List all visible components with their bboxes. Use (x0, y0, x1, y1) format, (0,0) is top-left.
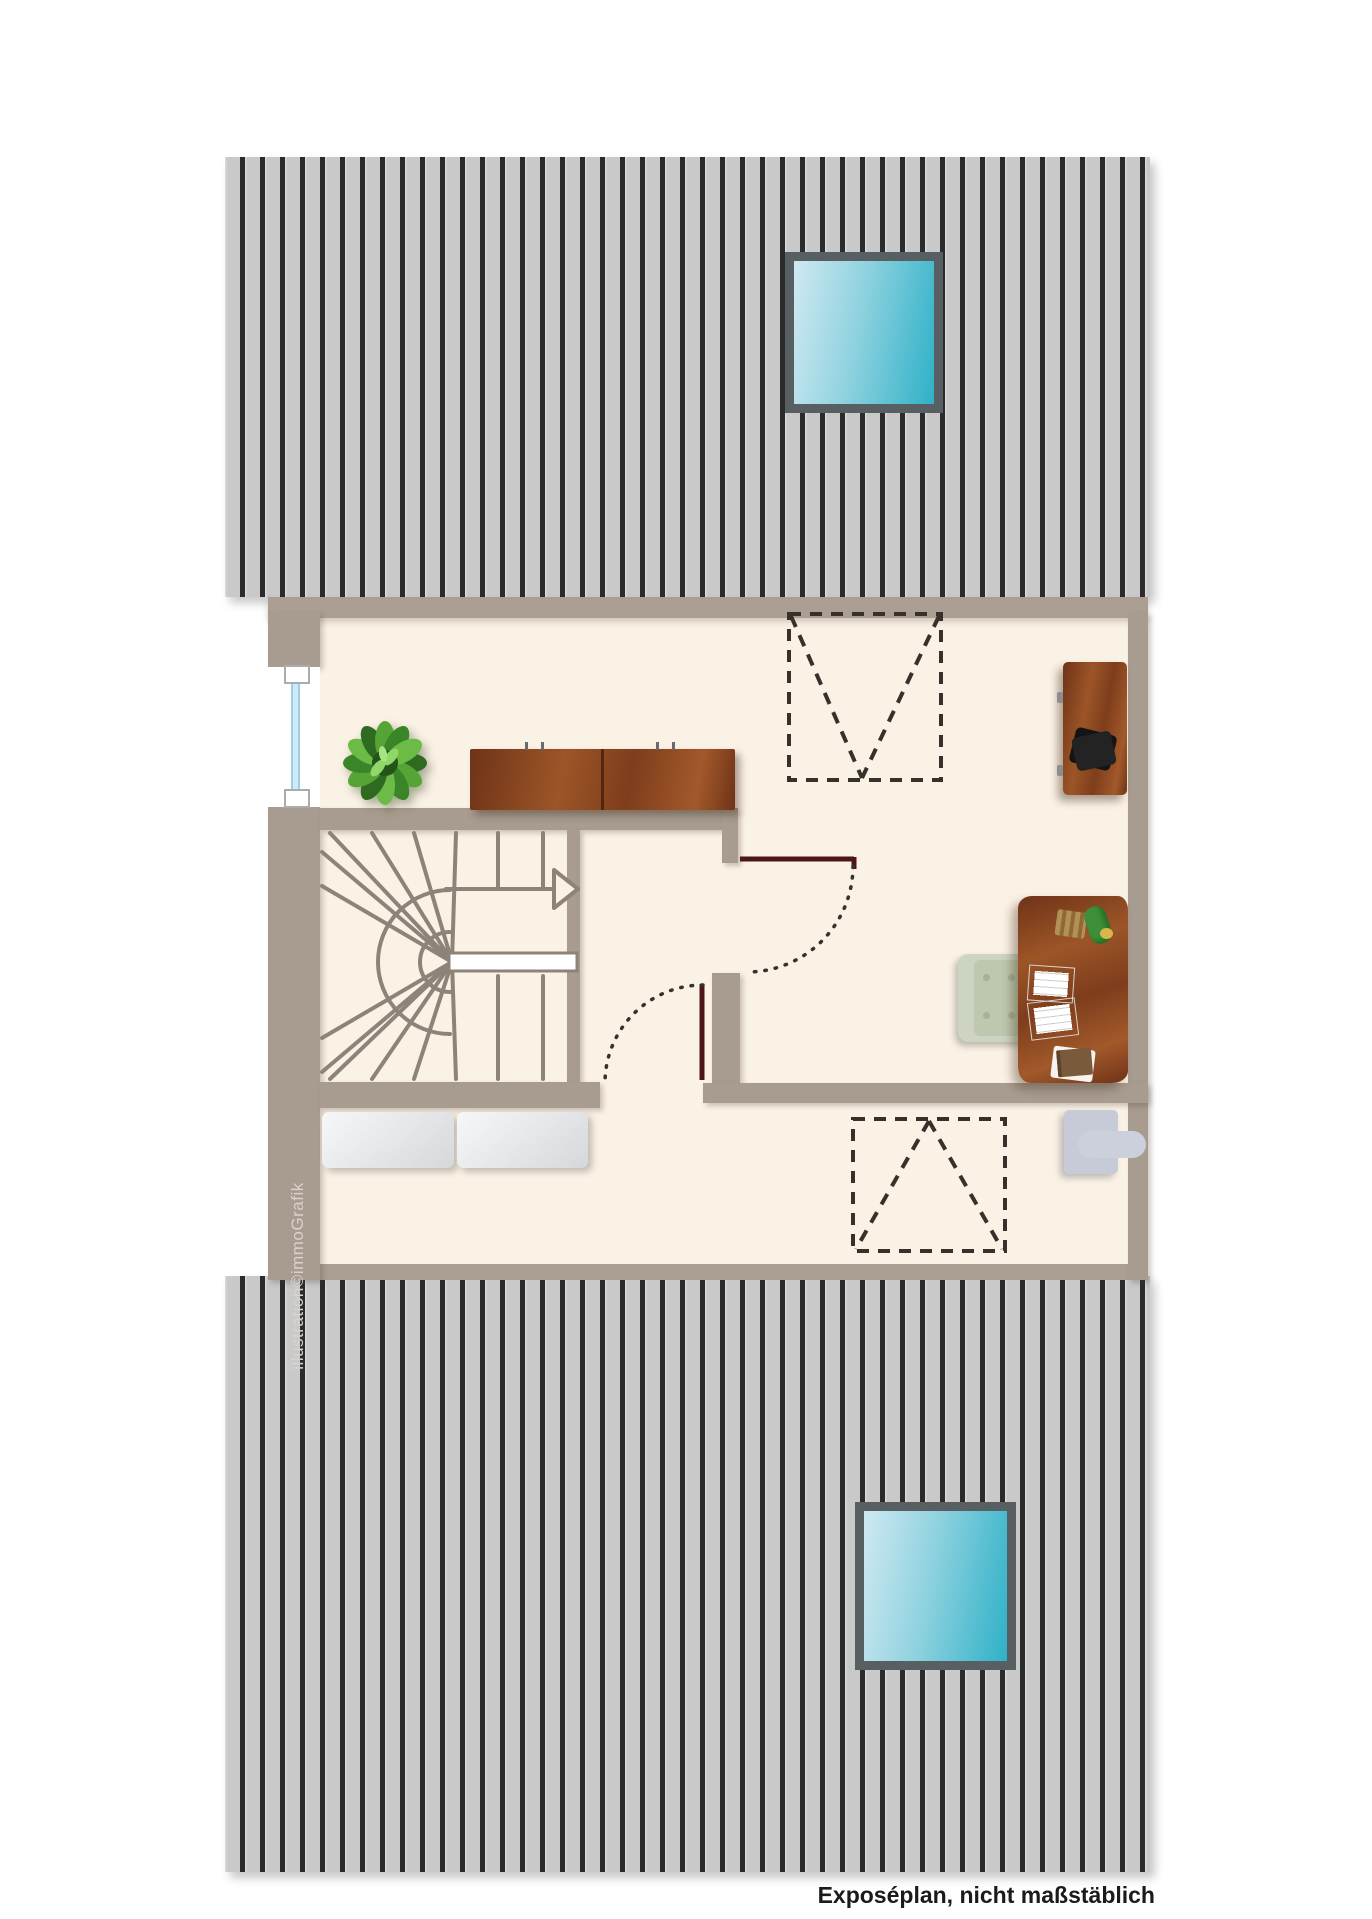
office-chair-seat (974, 960, 1024, 1036)
illustrator-watermark: illustration©immoGrafik (288, 1140, 308, 1412)
floor-plan: Exposéplan, nicht maßstäblich illustrati… (0, 0, 1372, 1919)
window-post (284, 665, 310, 684)
wall-stair-bottom (320, 1082, 600, 1108)
sofa-cushion (322, 1112, 454, 1168)
roof-surface-top (225, 157, 1150, 597)
window-glazing (291, 682, 300, 792)
eave-band-top (268, 597, 1148, 618)
wall-top-room (320, 808, 722, 830)
sideboard-handle (525, 742, 528, 750)
cabinet (1063, 662, 1127, 795)
room-floor (268, 597, 1148, 1280)
chair-button (1008, 974, 1015, 981)
sideboard (470, 749, 735, 810)
desk-plant-accent (1100, 928, 1113, 939)
eave-band-bottom (268, 1264, 1148, 1280)
sofa-cushion (457, 1112, 588, 1168)
wall-door-pier (712, 973, 740, 1083)
skylight-window (855, 1502, 1016, 1670)
chair-button (983, 1012, 990, 1019)
plan-caption: Exposéplan, nicht maßstäblich (555, 1882, 1155, 1909)
desk-notepad (1054, 909, 1087, 939)
cabinet-handle (1057, 765, 1063, 776)
sideboard-handle (541, 742, 544, 750)
paper-sheet (1027, 997, 1079, 1041)
sideboard-handle (656, 742, 659, 750)
chair-button (983, 974, 990, 981)
wall-right (1128, 612, 1148, 1280)
skylight-window (785, 252, 943, 413)
wall-door-stub-upper (722, 808, 738, 863)
cabinet-handle (1057, 692, 1063, 703)
book (1056, 1048, 1093, 1078)
radiator-bracket (1078, 1131, 1146, 1158)
sideboard-handle (672, 742, 675, 750)
chair-button (1008, 1012, 1015, 1019)
window-post (284, 789, 310, 808)
wall-left-upper (268, 612, 320, 667)
wall-office-divider (703, 1083, 1148, 1103)
wall-stair-right (567, 830, 580, 1082)
